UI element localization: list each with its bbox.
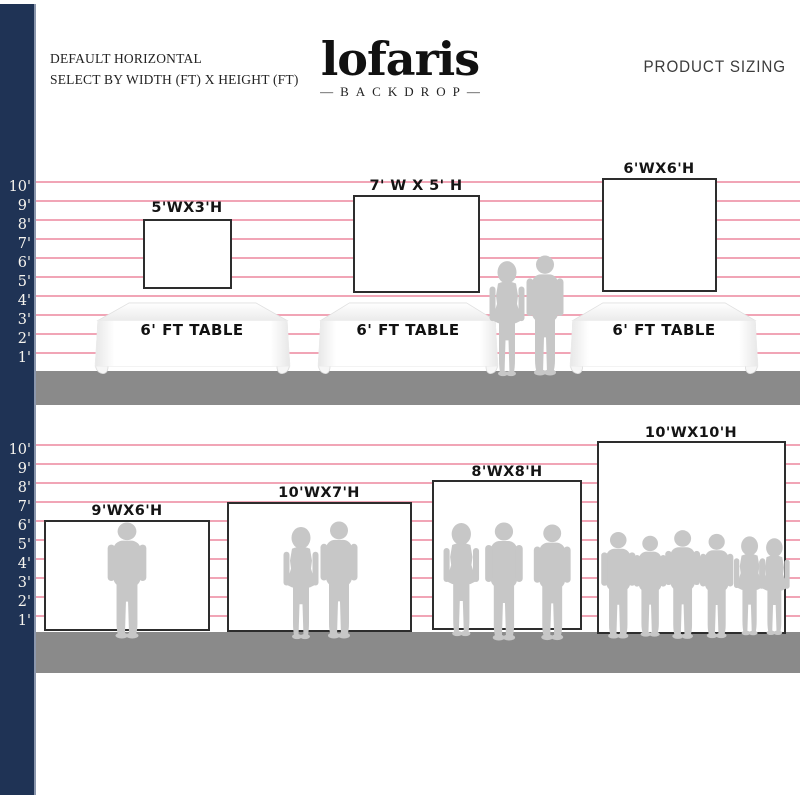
backdrop-rect-5x3 xyxy=(143,219,232,289)
ruler-tick: 1' xyxy=(0,613,31,629)
ruler-tick: 8' xyxy=(0,217,31,233)
ruler-tick: 10' xyxy=(0,179,31,195)
table-label: 6' FT TABLE xyxy=(328,321,488,339)
ruler-tick: 9' xyxy=(0,461,31,477)
ruler-tick: 10' xyxy=(0,442,31,458)
ruler-tick: 5' xyxy=(0,537,31,553)
ruler-tick: 7' xyxy=(0,236,31,252)
backdrop-rect-7x5 xyxy=(353,195,480,293)
ruler-tick: 4' xyxy=(0,293,31,309)
ruler-tick: 6' xyxy=(0,255,31,271)
header-subtitle: DEFAULT HORIZONTAL SELECT BY WIDTH (FT) … xyxy=(50,49,299,91)
trio-silhouette xyxy=(441,518,575,638)
header-subtitle-line2: SELECT BY WIDTH (FT) X HEIGHT (FT) xyxy=(50,70,299,91)
table-label: 6' FT TABLE xyxy=(112,321,272,339)
couple-silhouette xyxy=(487,254,567,376)
logo-subtitle: —BACKDROP— xyxy=(290,84,510,100)
header-subtitle-line1: DEFAULT HORIZONTAL xyxy=(50,49,299,70)
table xyxy=(95,300,290,378)
ruler-tick: 4' xyxy=(0,556,31,572)
couple-silhouette xyxy=(281,520,361,639)
backdrop-size-label: 9'WX6'H xyxy=(57,503,197,519)
logo-wordmark: lofaris xyxy=(290,36,510,82)
backdrop-size-label: 10'WX10'H xyxy=(611,425,771,441)
ruler-tick: 2' xyxy=(0,594,31,610)
ruler-tick: 2' xyxy=(0,331,31,347)
man-silhouette xyxy=(104,521,150,639)
ruler-tick: 1' xyxy=(0,350,31,366)
backdrop-size-label: 5'WX3'H xyxy=(127,200,247,216)
page-title: PRODUCT SIZING xyxy=(602,58,786,77)
backdrop-size-label: 6'WX6'H xyxy=(589,161,729,177)
backdrop-rect-6x6 xyxy=(602,178,717,292)
backdrop-size-label: 10'WX7'H xyxy=(249,485,389,501)
ruler-tick: 3' xyxy=(0,312,31,328)
ruler-bar xyxy=(0,4,36,795)
group-silhouette xyxy=(598,525,786,639)
backdrop-size-label: 7' W X 5' H xyxy=(346,178,486,194)
product-sizing-poster: DEFAULT HORIZONTAL SELECT BY WIDTH (FT) … xyxy=(0,0,800,800)
ruler-tick: 6' xyxy=(0,518,31,534)
table-label: 6' FT TABLE xyxy=(584,321,744,339)
ruler-tick: 5' xyxy=(0,274,31,290)
logo: lofaris —BACKDROP— xyxy=(290,36,510,100)
backdrop-size-label: 8'WX8'H xyxy=(437,464,577,480)
ruler-tick: 9' xyxy=(0,198,31,214)
ruler-tick: 7' xyxy=(0,499,31,515)
table xyxy=(318,300,498,378)
ruler-tick: 8' xyxy=(0,480,31,496)
table xyxy=(570,300,758,378)
ruler-tick: 3' xyxy=(0,575,31,591)
